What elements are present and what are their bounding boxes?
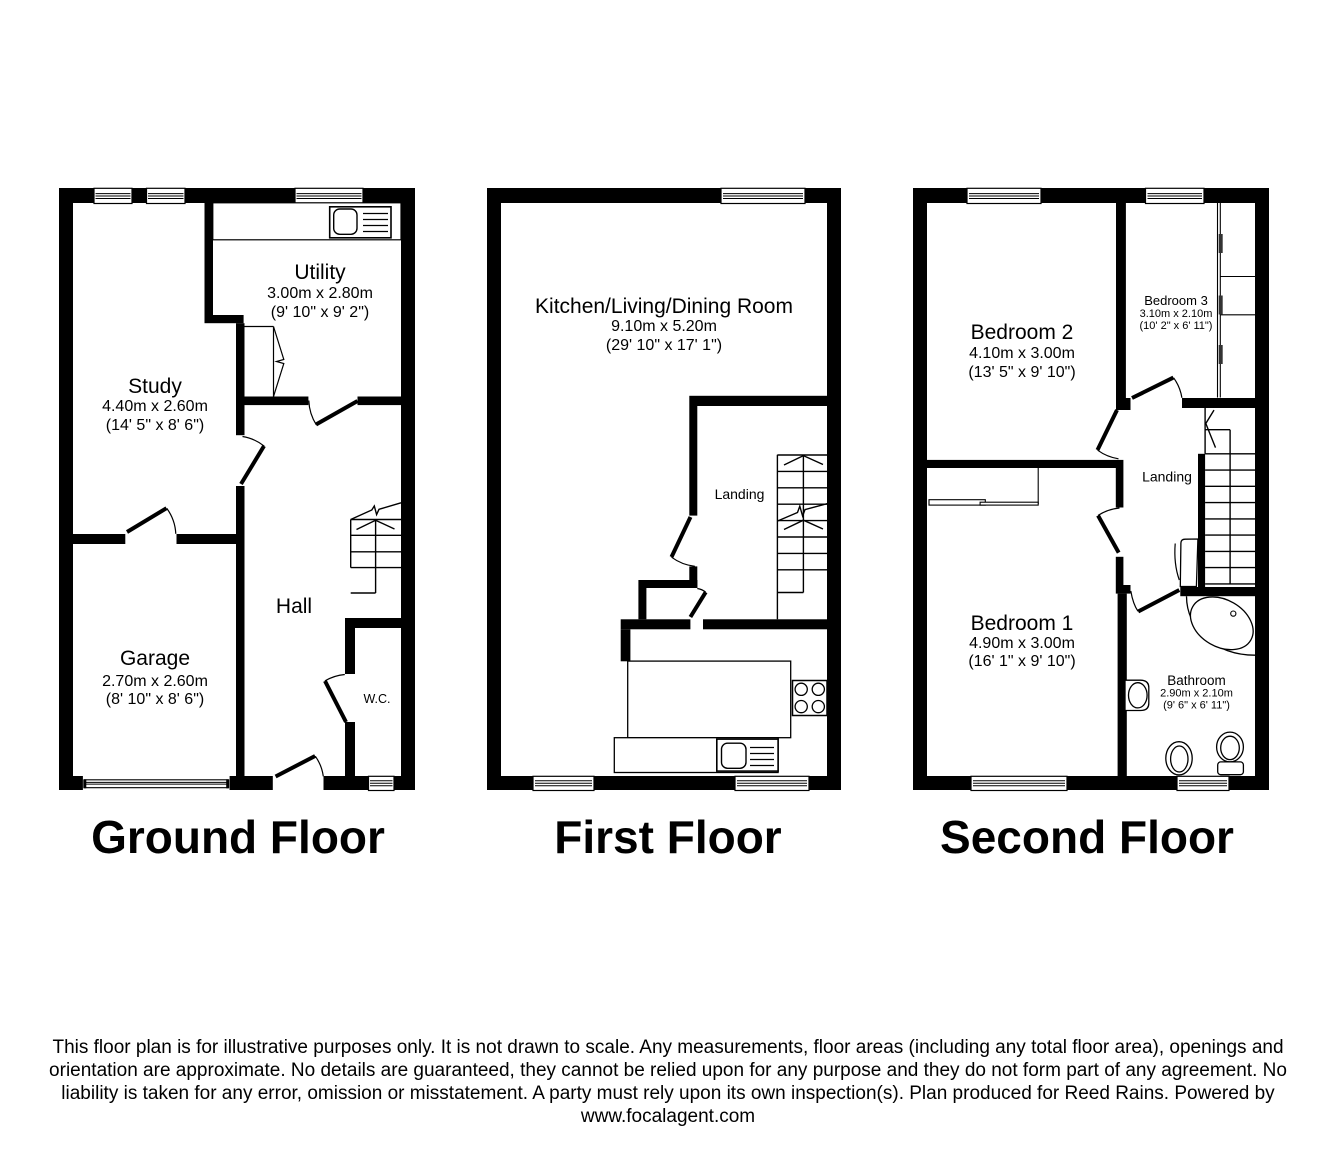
svg-text:www.focalagent.com: www.focalagent.com <box>580 1106 755 1127</box>
svg-text:Ground Floor: Ground Floor <box>91 811 385 863</box>
svg-text:(14' 5" x 8' 6"): (14' 5" x 8' 6") <box>106 417 204 434</box>
svg-text:Utility: Utility <box>294 261 346 284</box>
svg-text:Study: Study <box>128 375 182 398</box>
svg-text:Landing: Landing <box>715 486 765 502</box>
svg-text:Second Floor: Second Floor <box>940 811 1234 863</box>
svg-text:4.40m x 2.60m: 4.40m x 2.60m <box>102 398 208 415</box>
svg-text:Bedroom 3: Bedroom 3 <box>1144 293 1208 308</box>
svg-text:Bedroom 1: Bedroom 1 <box>971 612 1074 635</box>
svg-text:(9' 10" x 9' 2"): (9' 10" x 9' 2") <box>271 304 369 321</box>
svg-text:This floor plan is for illustr: This floor plan is for illustrative purp… <box>52 1037 1283 1058</box>
svg-text:(13' 5" x 9' 10"): (13' 5" x 9' 10") <box>968 364 1075 381</box>
svg-text:Landing: Landing <box>1142 469 1192 485</box>
svg-text:orientation are approximate. N: orientation are approximate. No details … <box>49 1060 1287 1081</box>
svg-text:First Floor: First Floor <box>554 811 782 863</box>
svg-text:Bathroom: Bathroom <box>1167 673 1226 688</box>
svg-text:Garage: Garage <box>120 647 190 670</box>
svg-text:Bedroom 2: Bedroom 2 <box>971 321 1074 344</box>
svg-text:Kitchen/Living/Dining Room: Kitchen/Living/Dining Room <box>535 295 793 318</box>
svg-text:4.10m x 3.00m: 4.10m x 3.00m <box>969 345 1075 362</box>
svg-text:9.10m x 5.20m: 9.10m x 5.20m <box>611 318 717 335</box>
svg-text:4.90m x 3.00m: 4.90m x 3.00m <box>969 635 1075 652</box>
svg-text:(16' 1" x 9' 10"): (16' 1" x 9' 10") <box>968 653 1075 670</box>
svg-text:Hall: Hall <box>276 595 312 618</box>
svg-text:(9' 6" x 6' 11"): (9' 6" x 6' 11") <box>1163 700 1230 712</box>
svg-text:3.00m x 2.80m: 3.00m x 2.80m <box>267 285 373 302</box>
svg-text:(10' 2" x 6' 11"): (10' 2" x 6' 11") <box>1140 320 1213 332</box>
svg-text:liability is taken for any err: liability is taken for any error, omissi… <box>61 1083 1275 1104</box>
svg-text:W.C.: W.C. <box>363 692 390 706</box>
svg-text:3.10m x 2.10m: 3.10m x 2.10m <box>1140 308 1213 320</box>
svg-text:(8' 10" x 8' 6"): (8' 10" x 8' 6") <box>106 691 204 708</box>
svg-text:(29' 10" x 17' 1"): (29' 10" x 17' 1") <box>606 337 722 354</box>
svg-text:2.90m x 2.10m: 2.90m x 2.10m <box>1160 688 1233 700</box>
svg-text:2.70m x 2.60m: 2.70m x 2.60m <box>102 673 208 690</box>
